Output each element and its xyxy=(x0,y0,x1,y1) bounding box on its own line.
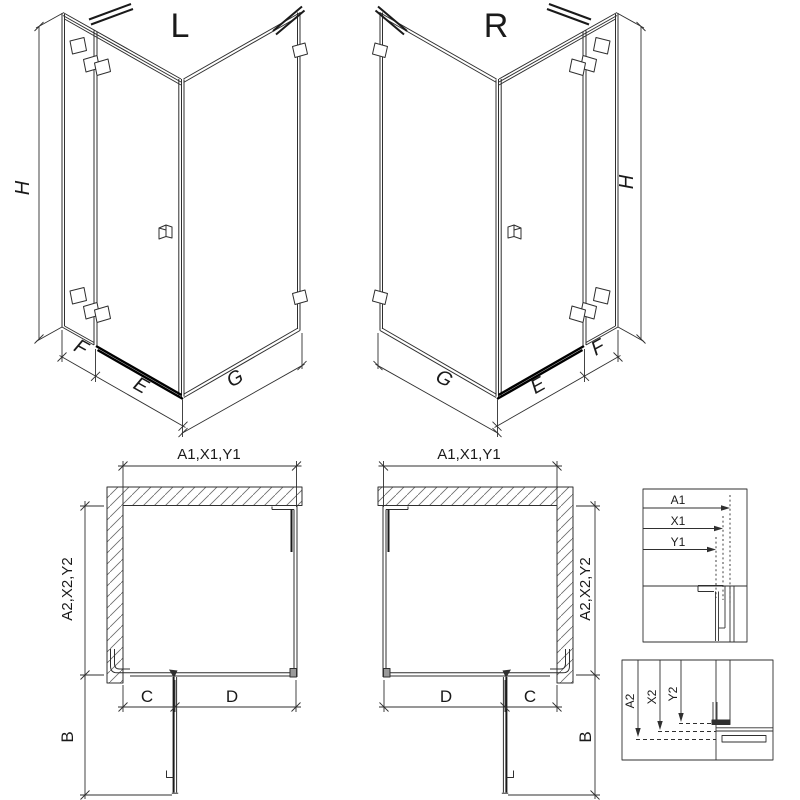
detail-label-a2: A2 xyxy=(623,693,637,708)
plan-view-left: A1,X1,Y1 A2,X2,Y2 C D B xyxy=(58,446,302,800)
plan-view-right: A1,X1,Y1 A2,X2,Y2 D C B xyxy=(378,446,600,800)
iso-view-left: L H F E G xyxy=(12,4,308,437)
technical-drawing: L H F E G R H F E G A1,X1,Y1 A2,X2,Y2 C … xyxy=(0,0,800,800)
dim-label-fixed-left: F xyxy=(70,335,93,361)
dim-label-d-right-plan: D xyxy=(440,687,452,706)
detail-depth-box: A2 X2 Y2 xyxy=(622,660,773,760)
dim-label-c-left-plan: C xyxy=(141,687,153,706)
dim-label-b-right-plan: B xyxy=(576,731,595,742)
dim-label-height-right: H xyxy=(616,174,638,189)
dim-label-fixed-right: F xyxy=(587,334,610,360)
wall-hatch-right-plan xyxy=(378,487,573,683)
dim-label-depth-left-plan: A2,X2,Y2 xyxy=(59,557,76,620)
drawing-canvas: L H F E G R H F E G A1,X1,Y1 A2,X2,Y2 C … xyxy=(0,0,800,800)
detail-label-x2: X2 xyxy=(645,689,659,704)
dim-label-c-right-plan: C xyxy=(524,687,536,706)
detail-label-y1: Y1 xyxy=(671,535,686,549)
iso-view-right: R H F E G xyxy=(373,4,646,437)
detail-width-box: A1 X1 Y1 xyxy=(643,489,747,642)
dim-label-door-right: E xyxy=(527,373,550,399)
dim-label-width-left-plan: A1,X1,Y1 xyxy=(177,446,240,463)
view-letter-right: R xyxy=(484,7,509,45)
wall-hatch-left-plan xyxy=(107,487,302,683)
dim-label-width-right-plan: A1,X1,Y1 xyxy=(437,446,500,463)
detail-label-a1: A1 xyxy=(671,493,686,507)
detail-label-y2: Y2 xyxy=(666,686,680,701)
dim-label-depth-right-plan: A2,X2,Y2 xyxy=(577,557,594,620)
view-letter-left: L xyxy=(171,7,190,45)
dim-label-height-left: H xyxy=(12,180,34,195)
dim-label-return-right: G xyxy=(432,365,456,392)
dim-label-b-left-plan: B xyxy=(58,731,77,742)
dim-label-door-left: E xyxy=(130,373,153,399)
dim-label-d-left-plan: D xyxy=(226,687,238,706)
detail-label-x1: X1 xyxy=(671,514,686,528)
